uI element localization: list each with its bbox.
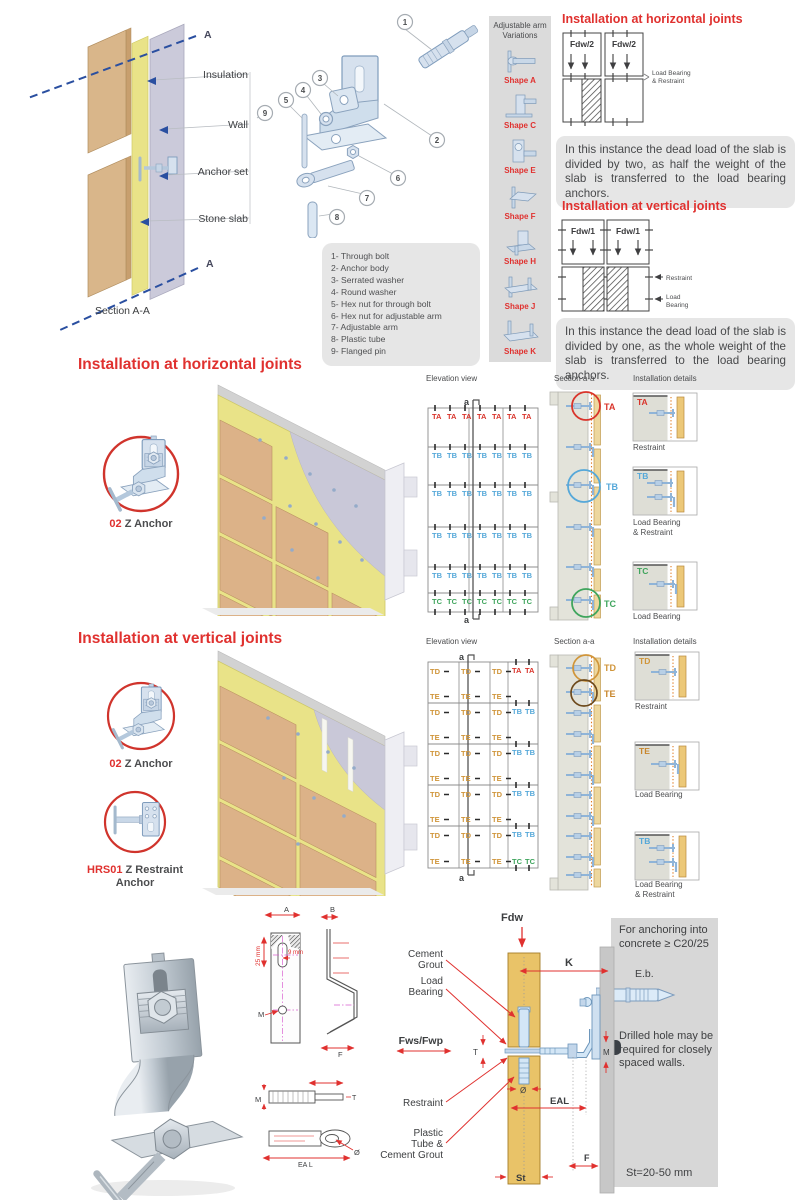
force-label: Fdw/1 (616, 226, 640, 236)
parts-item: 7- Adjustable arm (331, 322, 471, 334)
z-anchor-badge-2 (103, 678, 179, 754)
svg-text:TE: TE (639, 746, 650, 756)
elevation-tag: TE (461, 733, 471, 742)
z-anchor-badge (96, 429, 186, 519)
diagram-horizontal-load: Fdw/2 Fdw/2 Load Bearing & Restraint (556, 30, 800, 130)
elevation-grid-labels: TDTETDTETDTETATATDTETDTETDTETBTBTDTETDTE… (430, 659, 536, 871)
svg-text:F: F (584, 1153, 590, 1163)
elevation-tag: TB (432, 451, 443, 460)
elevation-tag: TB (432, 571, 443, 580)
anchor-name: Z Restraint (126, 864, 183, 876)
anchor-code: HRS01 (87, 864, 122, 876)
elevation-tag: TA (477, 412, 487, 421)
part-hex-nut (347, 146, 358, 159)
tag-te: TE (604, 689, 616, 699)
arm-variations-panel: Adjustable armVariations Shape A Shape C… (489, 16, 551, 362)
heading-horizontal-section: Installation at horizontal joints (78, 356, 302, 374)
elevation-tag: TC (507, 597, 518, 606)
elevation-tag: TB (522, 489, 533, 498)
z-anchor-caption-2: 02 Z Anchor (88, 758, 194, 771)
elevation-tag: TB (432, 489, 443, 498)
elevation-tag: TD (461, 749, 472, 758)
svg-text:Ø: Ø (520, 1086, 526, 1095)
restraint-anchor-badge (101, 788, 169, 856)
elevation-tag: TC (492, 597, 503, 606)
detail-box-te: TE (635, 742, 699, 790)
elevation-tag: TB (492, 489, 503, 498)
eb-label: E.b. (635, 968, 654, 982)
elevation-tag: TC (512, 857, 523, 866)
elevation-tag: TD (461, 667, 472, 676)
tag-tc: TC (604, 599, 616, 609)
lower-slab (508, 1056, 540, 1184)
elevation-tag: TB (477, 489, 488, 498)
elevation-tag: TB (462, 531, 473, 540)
force-label: Fdw/2 (570, 39, 594, 49)
elevation-tag: TB (512, 707, 523, 716)
detail-caption: Restraint (633, 443, 665, 453)
elevation-tag: TD (430, 667, 441, 676)
elevation-tag: TB (522, 531, 533, 540)
heading-horizontal-joints-top: Installation at horizontal joints (562, 12, 743, 26)
elevation-tag: TB (525, 789, 536, 798)
elevation-tag: TE (492, 857, 502, 866)
svg-text:B: B (330, 905, 335, 914)
arm-shape-h: Shape H (501, 230, 539, 266)
svg-text:EAL: EAL (550, 1096, 569, 1107)
elevation-tag: TE (492, 774, 502, 783)
svg-text:9: 9 (263, 109, 268, 118)
tag-td: TD (604, 663, 616, 673)
elevation-tag: TC (525, 857, 536, 866)
fdw-label: Fdw (501, 912, 523, 924)
cut-marker-bottom: A (206, 258, 214, 270)
elevation-tag: TA (462, 412, 472, 421)
label-stone-slab: Stone slab (198, 213, 248, 225)
elevation-tag: TE (492, 733, 502, 742)
parts-item: 8- Plastic tube (331, 334, 471, 346)
arm-variations-title: Adjustable armVariations (493, 21, 546, 40)
anchor-name: Z Anchor (125, 758, 173, 770)
wall-strip (600, 947, 614, 1193)
svg-text:M: M (603, 1048, 610, 1057)
panel-heading: For anchoring into concrete ≥ C20/25 (619, 924, 713, 951)
elevation-tag: TC (432, 597, 443, 606)
annotation-restraint: Restraint (666, 275, 692, 282)
section-title: Section a-a (554, 374, 595, 383)
arm-shape-e: Shape E (501, 139, 539, 175)
elevation-tag: TE (492, 815, 502, 824)
svg-text:25 mm: 25 mm (255, 946, 262, 966)
details-title: Installation details (633, 637, 697, 646)
svg-text:2: 2 (435, 136, 440, 145)
arm-shape-k-icon (501, 320, 539, 346)
elevation-tag: TB (492, 451, 503, 460)
arm-shape-k: Shape K (501, 320, 539, 356)
elevation-tag: TD (461, 708, 472, 717)
elevation-tag: TC (522, 597, 533, 606)
elevation-tag: TB (447, 531, 458, 540)
parts-item: 4- Round washer (331, 287, 471, 299)
svg-text:TB: TB (639, 836, 650, 846)
svg-text:TA: TA (637, 397, 648, 407)
details-vertical: Installation details TD TE TB (630, 635, 742, 903)
label-wall: Wall (228, 119, 248, 131)
svg-text:Plastic: Plastic (414, 1128, 443, 1139)
arm-shape-j-icon (501, 275, 539, 301)
elevation-title: Elevation view (426, 374, 477, 383)
section-aa-isometric: A A Insulation Wall Anchor set Stone sla… (8, 8, 273, 333)
elevation-tag: TA (525, 666, 535, 675)
elevation-tag: TE (430, 774, 440, 783)
elevation-tag: TB (512, 789, 523, 798)
svg-text:Load: Load (421, 976, 443, 987)
arm-shape-e-icon (501, 139, 539, 165)
label-insulation: Insulation (203, 69, 248, 81)
cut-marker-top: A (204, 29, 212, 41)
anchor-installation-diagram: Fdw Cement Grout Load Bearing Fws/Fwp Re… (360, 905, 620, 1200)
elevation-tag: TB (507, 489, 518, 498)
detail-box-tb: TB (633, 467, 697, 515)
svg-text:4: 4 (301, 86, 306, 95)
section-caption: Section A-A (95, 305, 150, 317)
arm-shape-a: Shape A (501, 49, 539, 85)
svg-text:Grout: Grout (418, 960, 443, 971)
svg-text:Restraint: Restraint (403, 1098, 443, 1109)
z-anchor-caption: 02 Z Anchor (88, 518, 194, 531)
arm-shape-a-icon (501, 49, 539, 75)
elevation-tag: TD (430, 708, 441, 717)
svg-text:TD: TD (639, 656, 650, 666)
elevation-tag: TB (432, 531, 443, 540)
elevation-tag: TA (522, 412, 532, 421)
tag-ta: TA (604, 402, 616, 412)
annotation-load-bearing: Load Bearing (652, 70, 691, 77)
anchoring-info-panel: For anchoring into concrete ≥ C20/25 E.b… (611, 918, 718, 1187)
elevation-tag: TE (430, 857, 440, 866)
elevation-title: Elevation view (426, 637, 477, 646)
section-aa-horizontal: Section a-a TA TB TC (548, 372, 636, 628)
elevation-tag: TA (492, 412, 502, 421)
svg-text:1: 1 (403, 18, 408, 27)
arm-shape-j: Shape J (501, 275, 539, 311)
svg-text:M: M (255, 1095, 261, 1104)
elevation-tag: TD (430, 831, 441, 840)
parts-item: 5- Hex nut for through bolt (331, 299, 471, 311)
svg-text:T: T (473, 1048, 478, 1057)
side-view: B F (327, 905, 357, 1059)
elevation-tag: TB (447, 451, 458, 460)
svg-text:St: St (516, 1173, 526, 1184)
wall-3d-horizontal (198, 382, 423, 622)
elevation-tag: TB (447, 571, 458, 580)
arm-shape-c: Shape C (501, 94, 539, 130)
product-photo (58, 950, 263, 1200)
elevation-tag: TB (477, 571, 488, 580)
elevation-horizontal: Elevation view a a TATATATATATATATBTBTBT… (424, 372, 546, 628)
detail-box-ta: TA (633, 393, 697, 441)
svg-text:TC: TC (637, 566, 648, 576)
section-marker: a (459, 873, 465, 883)
parts-item: 2- Anchor body (331, 263, 471, 275)
tag-tb: TB (606, 482, 618, 492)
diagram-vertical-load: Fdw/1 Fdw/1 Restraint Load Bearing (556, 214, 800, 318)
svg-text:9 mm: 9 mm (288, 950, 303, 956)
elevation-grid-labels: TATATATATATATATBTBTBTBTBTBTBTBTBTBTBTBTB… (432, 405, 533, 615)
arm-shape-f: Shape F (501, 185, 539, 221)
arm-shape-c-icon (501, 94, 539, 120)
elevation-tag: TA (512, 666, 522, 675)
svg-text:5: 5 (284, 96, 289, 105)
section-title: Section a-a (554, 637, 595, 646)
annotation-load1: Load (666, 294, 681, 301)
wall-3d-vertical (198, 648, 423, 904)
elevation-tag: TD (461, 831, 472, 840)
elevation-tag: TE (430, 815, 440, 824)
annotation-load2: Bearing (666, 302, 689, 309)
exploded-view: 1 2 3 4 5 6 7 8 9 (256, 6, 488, 238)
elevation-tag: TC (447, 597, 458, 606)
elevation-tag: TD (492, 790, 503, 799)
restraint-anchor-caption: HRS01 Z Restraint Anchor (75, 864, 195, 889)
elevation-tag: TB (492, 571, 503, 580)
section-marker: a (459, 652, 465, 662)
anchor-code: 02 (109, 518, 121, 530)
elevation-tag: TE (461, 857, 471, 866)
parts-list: 1- Through bolt 2- Anchor body 3- Serrat… (322, 243, 480, 366)
svg-text:7: 7 (365, 194, 370, 203)
svg-text:K: K (565, 957, 573, 969)
annotation-restraint: & Restraint (652, 78, 684, 85)
svg-text:Cement Grout: Cement Grout (380, 1150, 443, 1161)
parts-item: 3- Serrated washer (331, 275, 471, 287)
section-aa-vertical: Section a-a TD TE (548, 635, 636, 900)
elevation-tag: TD (492, 749, 503, 758)
elevation-tag: TB (462, 571, 473, 580)
elevation-tag: TB (492, 531, 503, 540)
diagram-labels: Cement Grout Load Bearing Fws/Fwp Restra… (380, 949, 443, 1161)
anchor-name: Z Anchor (125, 518, 173, 530)
arm-drawing: Ø EA L (269, 1130, 360, 1169)
layer-labels: Insulation Wall Anchor set Stone slab (198, 69, 248, 225)
elevation-tag: TB (522, 571, 533, 580)
drilled-hole-note: Drilled hole may be required for closely… (619, 1030, 714, 1071)
elevation-tag: TB (525, 748, 536, 757)
elevation-tag: TB (447, 489, 458, 498)
elevation-tag: TC (477, 597, 488, 606)
elevation-tag: TB (512, 748, 523, 757)
svg-text:F: F (338, 1050, 343, 1059)
elevation-tag: TE (461, 692, 471, 701)
elevation-tag: TB (525, 707, 536, 716)
elevation-tag: TD (492, 667, 503, 676)
arm-shape-f-icon (501, 185, 539, 211)
dimensions: K T Ø EAL St M F (473, 957, 610, 1184)
elevation-tag: TD (492, 708, 503, 717)
parts-item: 6- Hex nut for adjustable arm (331, 311, 471, 323)
elevation-tag: TD (461, 790, 472, 799)
elevation-tag: TA (432, 412, 442, 421)
elevation-tag: TE (430, 733, 440, 742)
section-marker: a (464, 615, 470, 625)
elevation-tag: TB (477, 451, 488, 460)
anchor-name-line2: Anchor (75, 877, 195, 890)
catalog-page: A A Insulation Wall Anchor set Stone sla… (0, 0, 800, 1200)
force-label: Fdw/1 (571, 226, 595, 236)
svg-text:Tube &: Tube & (411, 1139, 443, 1150)
part-round-washer (320, 113, 333, 126)
elevation-tag: TE (492, 692, 502, 701)
svg-text:T: T (352, 1095, 357, 1102)
elevation-tag: TB (507, 451, 518, 460)
heading-vertical-joints-top: Installation at vertical joints (562, 199, 727, 213)
elevation-tag: TB (462, 489, 473, 498)
label-anchor-set: Anchor set (198, 166, 248, 178)
svg-text:6: 6 (396, 174, 401, 183)
elevation-tag: TB (477, 531, 488, 540)
elevation-tag: TB (507, 571, 518, 580)
elevation-tag: TB (512, 830, 523, 839)
svg-text:A: A (284, 905, 289, 914)
elevation-tag: TE (461, 774, 471, 783)
detail-box-tc: TC (633, 562, 697, 610)
svg-text:TB: TB (637, 471, 648, 481)
detail-caption: Load Bearing& Restraint (635, 880, 683, 899)
part-plastic-tube (308, 202, 317, 238)
svg-text:Fws/Fwp: Fws/Fwp (399, 1035, 443, 1047)
svg-text:EA L: EA L (298, 1162, 313, 1169)
details-horizontal: Installation details TA TB TC (630, 372, 742, 628)
detail-box-tb: TB (635, 832, 699, 880)
svg-text:Bearing: Bearing (409, 987, 443, 998)
elevation-tag: TB (522, 451, 533, 460)
svg-text:3: 3 (318, 74, 323, 83)
elevation-tag: TB (525, 830, 536, 839)
arm-shape-h-icon (501, 230, 539, 256)
elevation-tag: TA (447, 412, 457, 421)
detail-caption: Load Bearing& Restraint (633, 518, 681, 537)
front-view: A 25 mm 9 mm M (255, 905, 303, 1043)
svg-text:8: 8 (335, 213, 340, 222)
detail-box-td: TD (635, 652, 699, 700)
parts-item: 1- Through bolt (331, 251, 471, 263)
details-title: Installation details (633, 374, 697, 383)
horizontal-joints-body-text: In this instance the dead load of the sl… (556, 136, 795, 208)
bolt-drawing: M T (255, 1083, 357, 1110)
elevation-tag: TE (430, 692, 440, 701)
heading-vertical-section: Installation at vertical joints (78, 630, 282, 648)
svg-text:M: M (258, 1010, 264, 1019)
st-range: St=20-50 mm (626, 1167, 692, 1181)
elevation-tag: TD (430, 790, 441, 799)
part-rod (302, 114, 307, 168)
elevation-vertical: Elevation view a a TDTETDTETDTETATATDTET… (424, 635, 546, 885)
detail-caption: Restraint (635, 702, 667, 712)
elevation-tag: TB (507, 531, 518, 540)
detail-caption: Load Bearing (633, 612, 681, 622)
anchor-code: 02 (109, 758, 121, 770)
elevation-tag: TE (461, 815, 471, 824)
force-label: Fdw/2 (612, 39, 636, 49)
elevation-tag: TA (507, 412, 517, 421)
elevation-tag: TD (430, 749, 441, 758)
svg-text:Cement: Cement (408, 949, 443, 960)
upper-slab (508, 953, 540, 1047)
elevation-tag: TB (462, 451, 473, 460)
elevation-tag: TD (492, 831, 503, 840)
part-serrated-washer (329, 87, 359, 114)
parts-item: 9- Flanged pin (331, 346, 471, 358)
elevation-tag: TC (462, 597, 473, 606)
detail-caption: Load Bearing (635, 790, 683, 800)
